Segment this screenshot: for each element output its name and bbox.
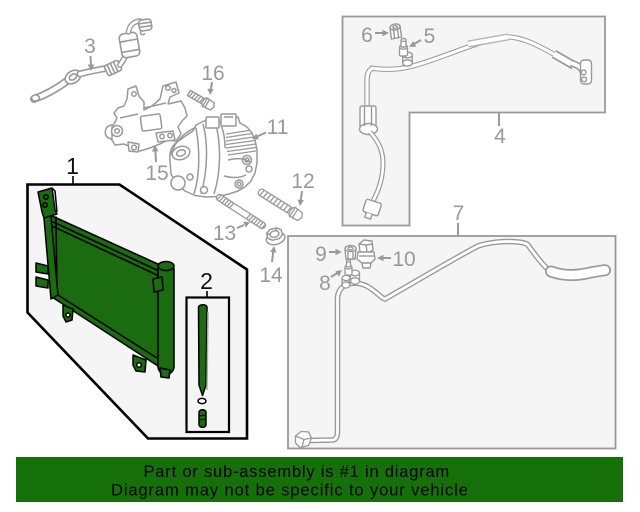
- svg-text:5: 5: [424, 25, 436, 48]
- svg-text:Part or sub-assembly is #1 in: Part or sub-assembly is #1 in diagram: [144, 463, 451, 481]
- svg-text:1: 1: [66, 153, 79, 179]
- svg-text:2: 2: [200, 268, 213, 294]
- svg-text:7: 7: [453, 202, 465, 225]
- svg-text:9: 9: [315, 243, 327, 266]
- svg-text:16: 16: [201, 62, 224, 85]
- svg-text:6: 6: [361, 24, 373, 47]
- svg-text:10: 10: [392, 248, 415, 271]
- svg-text:12: 12: [291, 170, 314, 193]
- svg-text:8: 8: [319, 272, 331, 295]
- svg-text:4: 4: [494, 125, 506, 148]
- svg-text:Diagram may not be specific to: Diagram may not be specific to your vehi…: [111, 482, 469, 500]
- svg-text:14: 14: [259, 264, 283, 287]
- svg-text:15: 15: [145, 162, 168, 185]
- svg-text:13: 13: [213, 222, 236, 245]
- svg-text:3: 3: [84, 35, 96, 58]
- svg-text:11: 11: [267, 116, 289, 139]
